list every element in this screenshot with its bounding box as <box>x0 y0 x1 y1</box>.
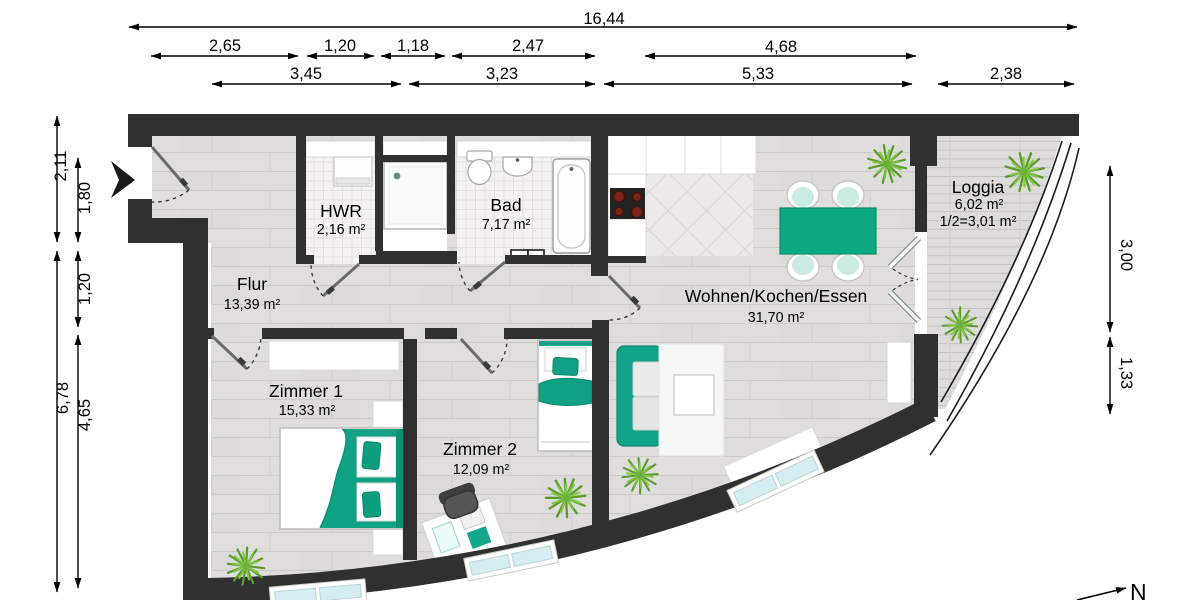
svg-text:7,17 m²: 7,17 m² <box>482 217 531 233</box>
svg-text:1,20: 1,20 <box>324 37 356 55</box>
svg-text:5,33: 5,33 <box>742 65 774 83</box>
svg-text:Flur: Flur <box>237 274 267 294</box>
svg-text:2,16 m²: 2,16 m² <box>317 222 366 238</box>
svg-text:16,44: 16,44 <box>583 10 624 28</box>
svg-text:3,23: 3,23 <box>486 65 518 83</box>
svg-text:Zimmer 2: Zimmer 2 <box>443 439 517 459</box>
svg-text:1,18: 1,18 <box>397 37 429 55</box>
svg-text:2,11: 2,11 <box>52 151 70 182</box>
svg-text:1,80: 1,80 <box>76 182 94 214</box>
svg-text:13,39 m²: 13,39 m² <box>224 297 281 313</box>
svg-text:3,00: 3,00 <box>1117 239 1135 271</box>
svg-text:2,38: 2,38 <box>990 65 1022 83</box>
svg-text:6,78: 6,78 <box>54 382 72 414</box>
svg-text:Wohnen/Kochen/Essen: Wohnen/Kochen/Essen <box>685 286 868 306</box>
svg-text:1,33: 1,33 <box>1117 357 1135 389</box>
svg-text:6,02 m²: 6,02 m² <box>955 197 1004 213</box>
svg-text:Zimmer 1: Zimmer 1 <box>269 381 343 401</box>
svg-text:Bad: Bad <box>490 195 521 215</box>
svg-text:1/2=3,01 m²: 1/2=3,01 m² <box>940 214 1017 230</box>
svg-text:3,45: 3,45 <box>290 65 322 83</box>
svg-text:4,68: 4,68 <box>765 38 797 56</box>
svg-text:2,65: 2,65 <box>209 37 241 55</box>
svg-text:12,09 m²: 12,09 m² <box>453 462 510 478</box>
svg-text:N: N <box>1130 579 1147 600</box>
svg-text:HWR: HWR <box>320 201 362 221</box>
svg-text:31,70 m²: 31,70 m² <box>748 310 805 326</box>
svg-text:2,47: 2,47 <box>512 37 544 55</box>
svg-text:15,33 m²: 15,33 m² <box>279 403 336 419</box>
svg-text:4,65: 4,65 <box>76 399 94 431</box>
svg-text:1,20: 1,20 <box>76 273 94 305</box>
svg-text:Loggia: Loggia <box>952 177 1005 197</box>
